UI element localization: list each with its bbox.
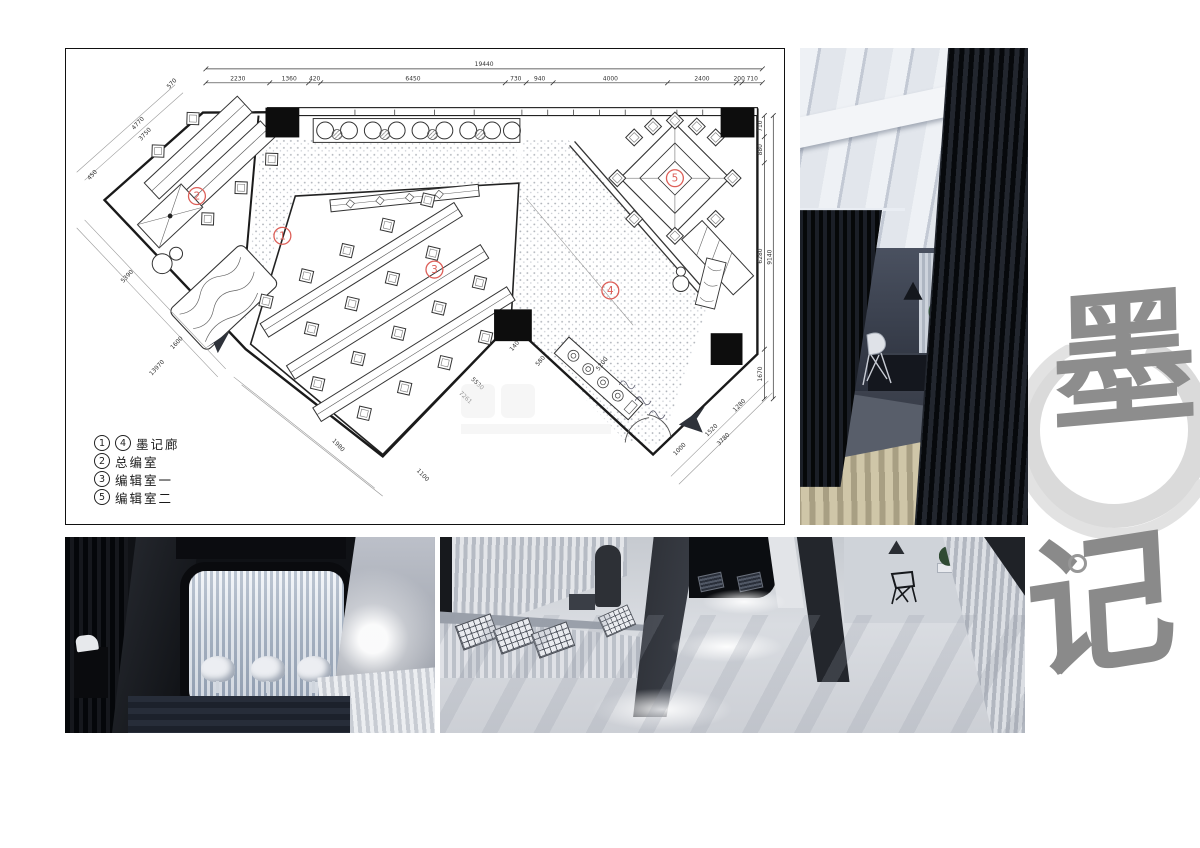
dark-ceiling	[176, 537, 346, 559]
svg-text:420: 420	[309, 75, 321, 82]
svg-text:570: 570	[166, 77, 179, 90]
plaid-pillow	[598, 604, 636, 637]
svg-text:6450: 6450	[405, 75, 420, 82]
room-marker-number: 5	[672, 173, 679, 185]
room-marker-number: 3	[431, 264, 438, 276]
pendant-lamp-icon	[885, 540, 907, 554]
striped-floor	[128, 696, 350, 733]
top-counter	[313, 119, 520, 143]
photo-corridor-rendering	[440, 537, 1025, 733]
svg-text:710: 710	[747, 75, 759, 82]
logo-small-ring	[1068, 554, 1087, 573]
wire-chair	[888, 570, 918, 606]
legend-row: 2总编室	[94, 453, 180, 469]
svg-text:19440: 19440	[475, 61, 494, 68]
decor-box	[569, 594, 595, 610]
svg-text:1600: 1600	[169, 335, 185, 351]
svg-text:880: 880	[757, 144, 764, 156]
svg-text:1000: 1000	[672, 441, 688, 457]
svg-text:9140: 9140	[766, 249, 773, 264]
pillow	[736, 572, 763, 593]
legend-label: 编辑室二	[115, 488, 173, 507]
legend-marker: 1	[94, 435, 110, 451]
room-marker-number: 1	[279, 230, 286, 242]
room-marker-number: 4	[607, 285, 614, 297]
side-desk	[74, 647, 107, 698]
svg-text:450: 450	[86, 168, 99, 181]
legend-label: 总编室	[115, 452, 159, 471]
svg-text:3780: 3780	[716, 431, 732, 447]
column	[494, 309, 532, 341]
legend-row: 5编辑室二	[94, 489, 180, 505]
legend-row: 3编辑室一	[94, 471, 180, 487]
design-presentation-board: 2230136042064507309404000240020071019440…	[0, 0, 1200, 848]
svg-text:730: 730	[510, 75, 522, 82]
svg-text:6280: 6280	[757, 248, 764, 263]
svg-text:1360: 1360	[282, 75, 297, 82]
svg-text:3750: 3750	[137, 126, 153, 142]
photo-office-rendering	[800, 48, 1028, 525]
logo-character-bottom: 记	[1023, 518, 1179, 692]
logo-character-top: 墨	[1049, 279, 1199, 440]
svg-text:940: 940	[534, 75, 546, 82]
column	[711, 333, 743, 365]
svg-text:1670: 1670	[757, 366, 764, 381]
chair	[857, 329, 897, 389]
dark-portal-right	[791, 537, 850, 682]
svg-text:1280: 1280	[732, 398, 748, 414]
legend-marker: 5	[94, 489, 110, 505]
legend-label: 墨记廊	[136, 434, 180, 453]
legend-marker: 3	[94, 471, 110, 487]
legend-marker: 4	[115, 435, 131, 451]
column	[721, 108, 755, 138]
svg-text:4770: 4770	[130, 115, 146, 131]
room-marker-number: 2	[194, 191, 201, 203]
brand-logo: 墨 记	[1028, 278, 1200, 698]
pillow	[698, 572, 725, 593]
legend-marker: 2	[94, 453, 110, 469]
photo-lounge-rendering	[65, 537, 435, 733]
floor-plan-panel: 2230136042064507309404000240020071019440…	[65, 48, 785, 525]
svg-text:1980: 1980	[330, 438, 346, 454]
portal-opening	[689, 537, 777, 598]
svg-text:710: 710	[757, 120, 764, 132]
top-wall	[267, 108, 757, 116]
round-chair	[201, 656, 237, 696]
svg-text:2400: 2400	[694, 75, 709, 82]
svg-text:2230: 2230	[230, 75, 245, 82]
round-chair	[251, 656, 287, 696]
svg-text:13970: 13970	[148, 358, 166, 377]
legend-row: 14墨记廊	[94, 435, 180, 451]
column	[266, 108, 300, 138]
svg-text:1100: 1100	[415, 467, 431, 483]
svg-text:140: 140	[508, 339, 521, 352]
wall-mirror	[595, 545, 621, 607]
svg-text:4000: 4000	[603, 75, 618, 82]
plan-legend: 14墨记廊2总编室3编辑室一5编辑室二	[94, 435, 180, 505]
legend-label: 编辑室一	[115, 470, 173, 489]
